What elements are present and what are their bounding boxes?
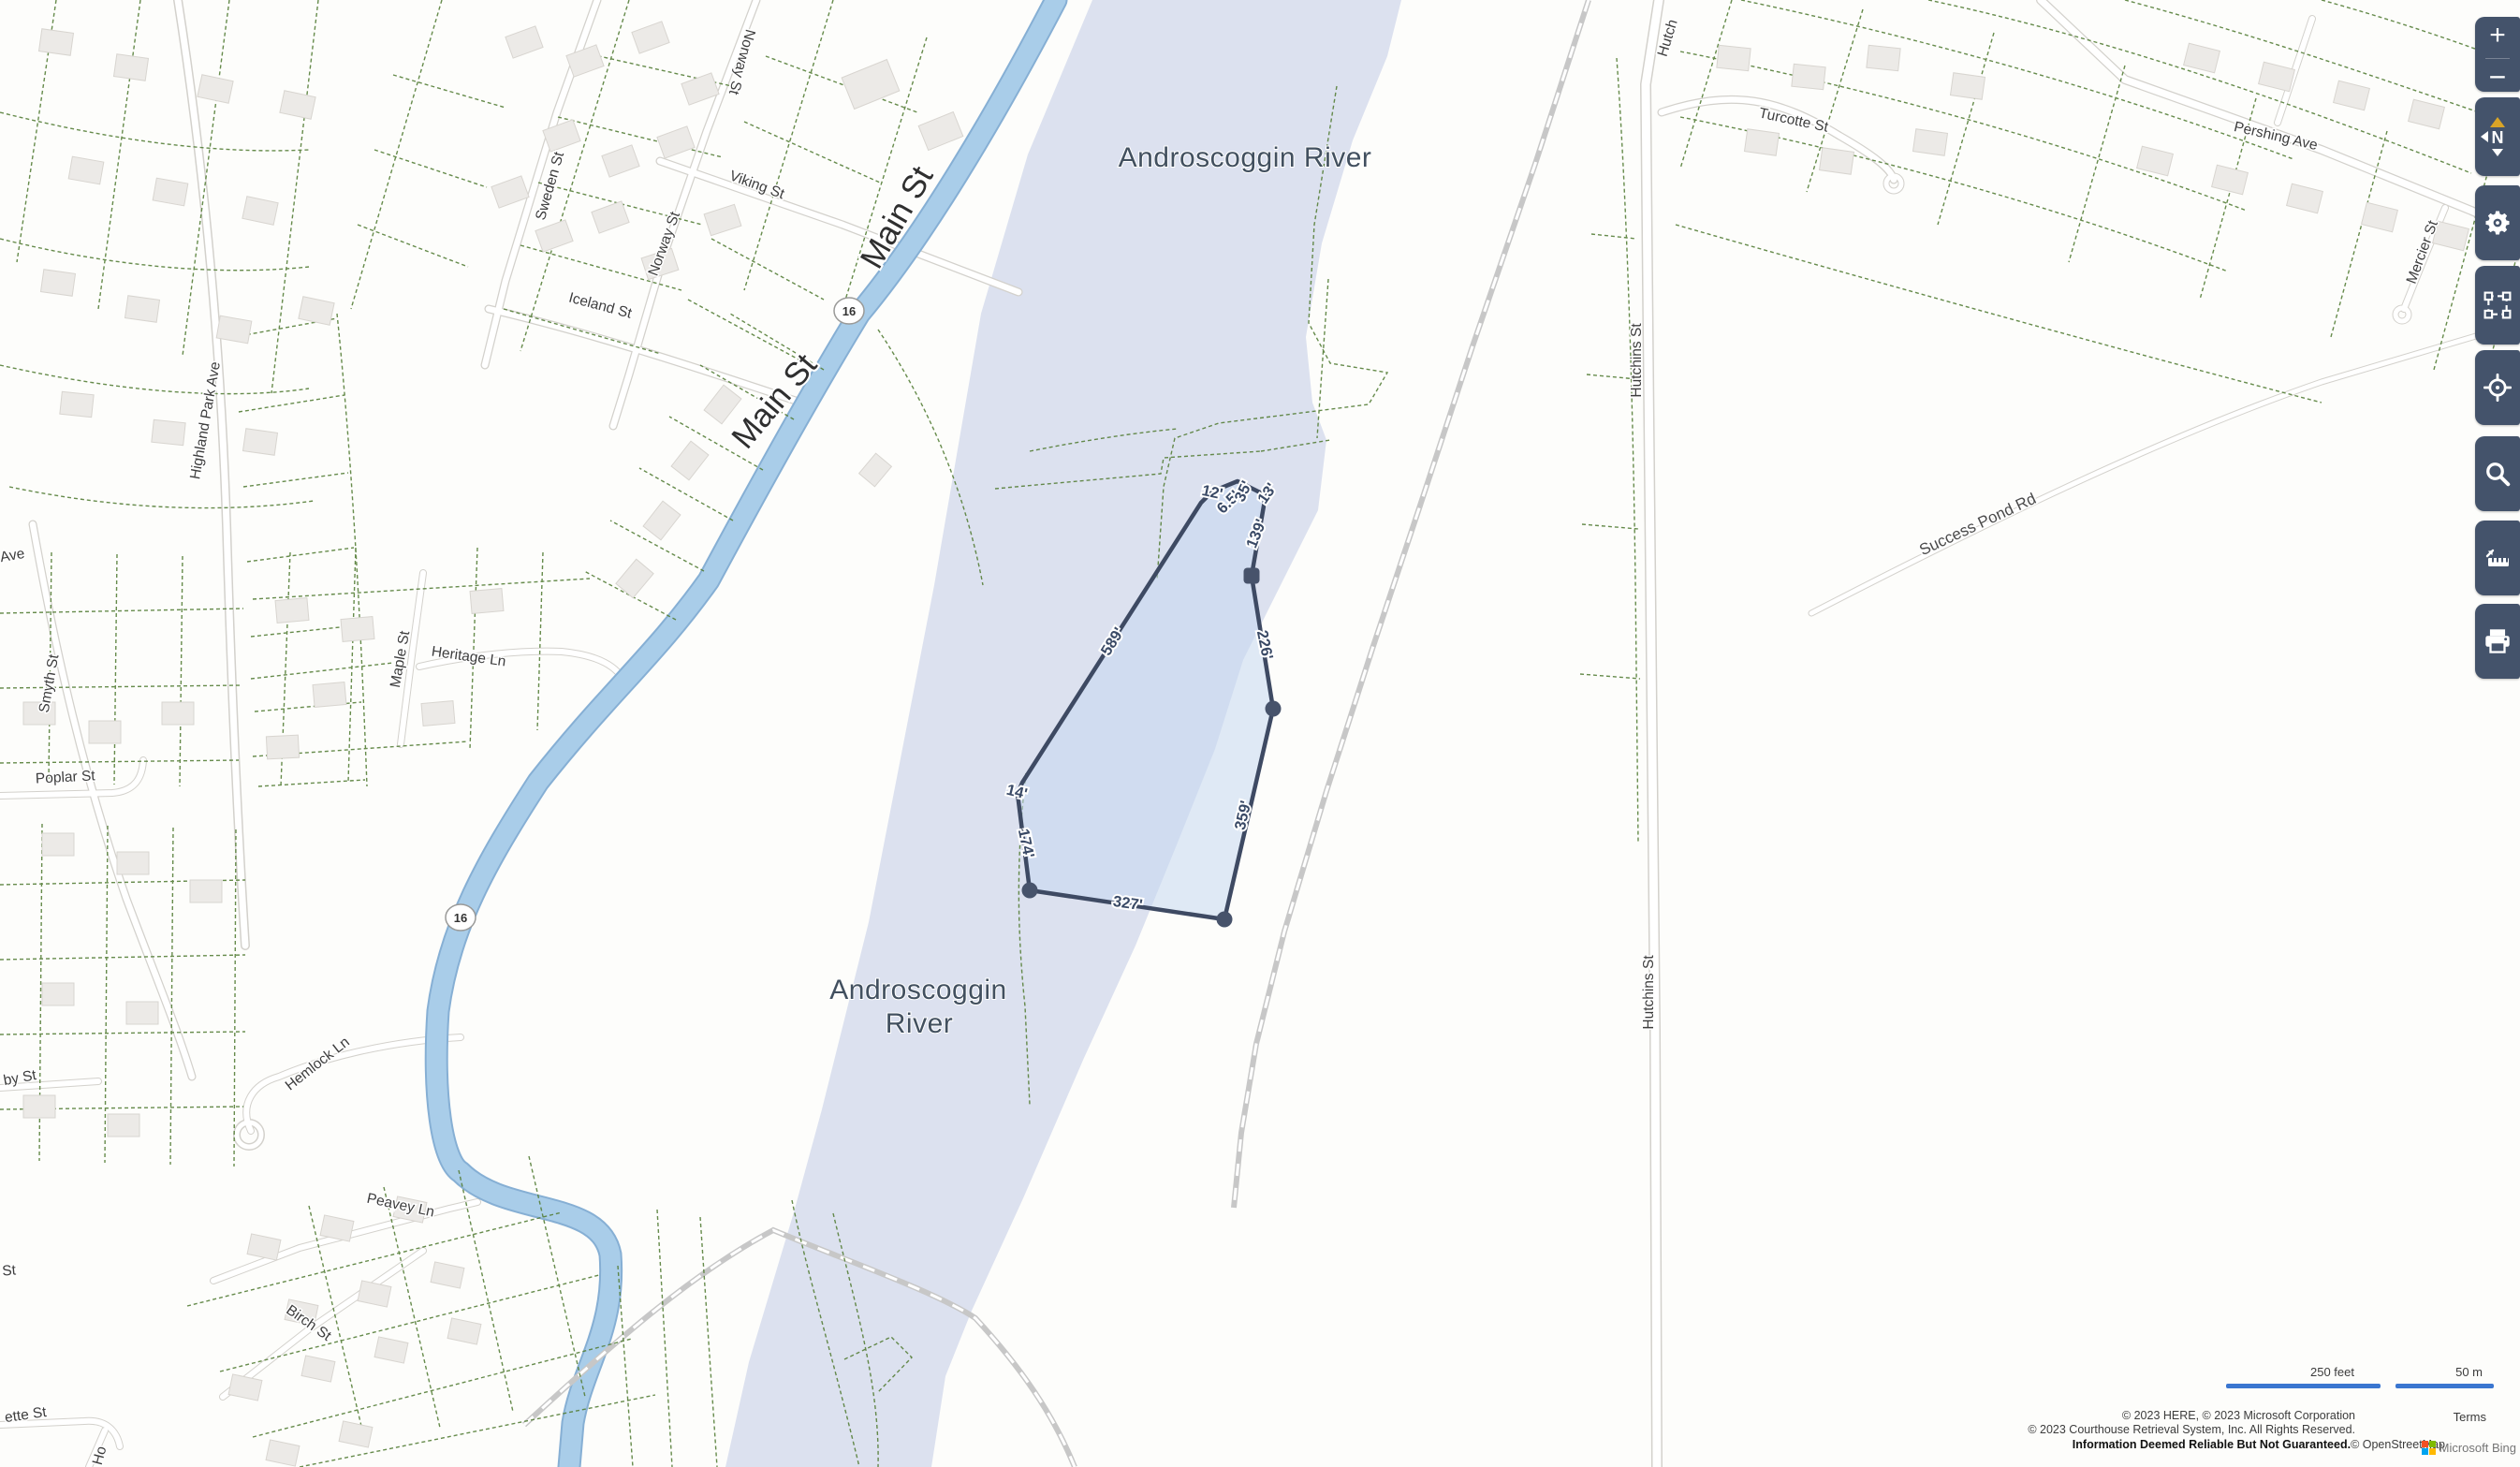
compass-button[interactable]: N [2475, 97, 2520, 176]
ruler-icon [2483, 546, 2513, 570]
settings-button[interactable] [2475, 185, 2520, 260]
terms-link[interactable]: Terms [2454, 1410, 2486, 1424]
street-label-iceland-st: Iceland St [567, 290, 635, 322]
attribution-line3: Information Deemed Reliable But Not Guar… [2028, 1438, 2445, 1453]
water-label-androscoggin-river-north: Androscoggin River [1119, 142, 1372, 173]
street-label-hutchins-st-2: Hutchins St [1641, 955, 1657, 1030]
route-shield-label: 16 [454, 911, 467, 925]
scale-imperial-label: 250 feet [2310, 1365, 2354, 1379]
microsoft-logo-icon [2422, 1441, 2436, 1455]
street-label-st-fragment: St [2, 1262, 18, 1279]
search-button[interactable] [2475, 436, 2520, 511]
street-label-mercier-st: Mercier St [2404, 218, 2441, 286]
bing-brand-label: Microsoft Bing [2439, 1441, 2516, 1455]
street-label-heritage-ln: Heritage Ln [431, 644, 507, 670]
locate-button[interactable] [2475, 350, 2520, 425]
measure-vertex-handle[interactable] [1022, 883, 1038, 899]
minus-icon: − [2489, 68, 2507, 86]
bing-brand[interactable]: Microsoft Bing [2429, 1441, 2516, 1455]
street-label-success-pond-rd: Success Pond Rd [1916, 490, 2039, 559]
street-label-hutchins-st-1: Hutchins St [1629, 323, 1645, 398]
map-canvas[interactable]: 16 16 Androscoggin River Androscoggin Ri… [0, 0, 2520, 1467]
compass-down-arrow-icon[interactable] [2492, 149, 2503, 156]
printer-icon [2483, 628, 2512, 654]
compass-up-arrow-icon[interactable] [2490, 117, 2505, 127]
map-toolbar: + − N [2473, 17, 2520, 679]
street-label-ave-fragment: Ave [0, 546, 26, 565]
attribution-line2: © 2023 Courthouse Retrieval System, Inc.… [2028, 1423, 2445, 1438]
search-icon [2483, 460, 2512, 488]
map-stage[interactable]: 16 16 Androscoggin River Androscoggin Ri… [0, 0, 2520, 1467]
divider [2485, 58, 2510, 59]
attribution-line1: © 2023 HERE, © 2023 Microsoft Corporatio… [2028, 1409, 2445, 1424]
scale-imperial: 250 feet [2226, 1365, 2381, 1388]
plus-icon: + [2489, 22, 2506, 50]
water-label-androscoggin-line2: River [886, 1008, 954, 1039]
scale-metric-bar [2395, 1384, 2494, 1388]
scale-imperial-bar [2226, 1384, 2381, 1388]
street-label-ho-fragment: Ho [90, 1445, 110, 1467]
scale-metric-label: 50 m [2455, 1365, 2483, 1379]
street-label-hemlock-ln: Hemlock Ln [283, 1034, 353, 1094]
select-area-button[interactable] [2475, 266, 2520, 345]
compass-left-arrow-icon[interactable] [2481, 131, 2488, 142]
water-label-androscoggin-line1: Androscoggin [829, 975, 1006, 1005]
zoom-in-button[interactable]: + [2489, 18, 2506, 53]
measure-vertex-handle[interactable] [1244, 568, 1260, 584]
zoom-out-button[interactable]: − [2489, 64, 2507, 92]
scale-metric: 50 m [2395, 1365, 2494, 1388]
route-shield-16-south: 16 [446, 904, 476, 931]
crosshair-icon [2483, 374, 2512, 402]
compass-north-label: N [2492, 129, 2504, 146]
measure-vertex-handle[interactable] [1266, 701, 1282, 717]
zoom-control: + − [2475, 17, 2520, 92]
measure-button[interactable] [2475, 521, 2520, 595]
measure-vertex-handle[interactable] [1217, 912, 1233, 928]
street-label-poplar-st: Poplar St [35, 768, 95, 786]
scale-bar: 250 feet 50 m [2226, 1365, 2494, 1388]
attribution: © 2023 HERE, © 2023 Microsoft Corporatio… [2028, 1409, 2445, 1453]
marquee-icon [2483, 291, 2512, 319]
route-shield-label: 16 [842, 304, 856, 318]
print-button[interactable] [2475, 604, 2520, 679]
route-shield-16-north: 16 [834, 298, 864, 324]
street-label-smyth-st: Smyth St [37, 653, 63, 714]
attribution-disclaimer: Information Deemed Reliable But Not Guar… [2073, 1438, 2351, 1451]
gear-icon [2483, 209, 2512, 237]
